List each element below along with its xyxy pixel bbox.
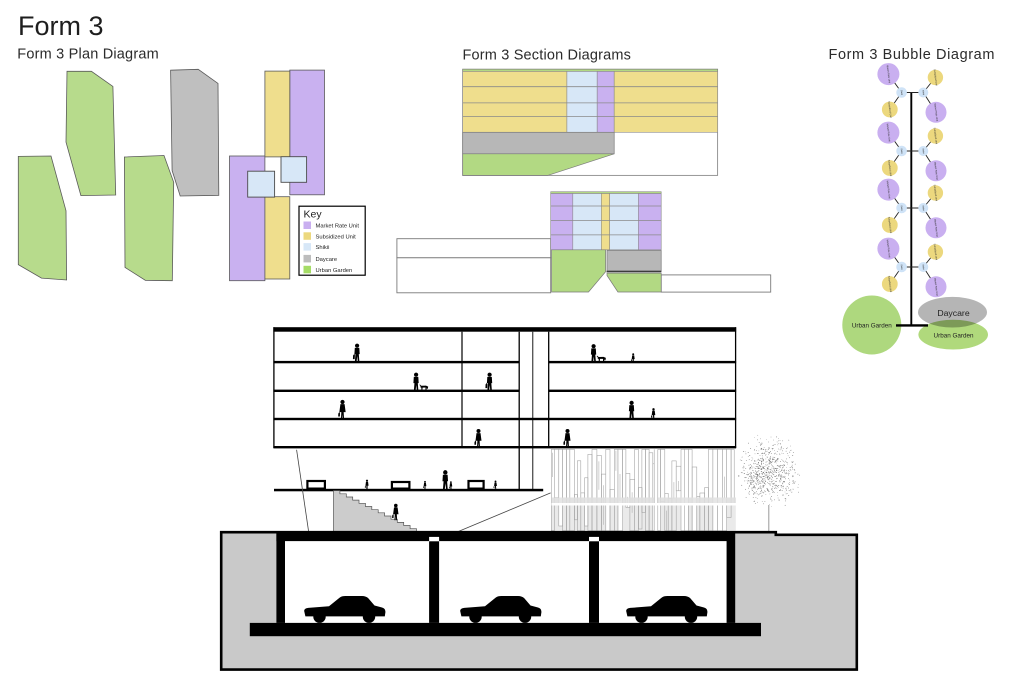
svg-text:Form 3 Section Diagrams: Form 3 Section Diagrams [463, 48, 632, 64]
svg-text:Key: Key [304, 209, 323, 221]
svg-text:Market Rate Unit: Market Rate Unit [316, 224, 360, 230]
svg-text:Urban Garden: Urban Garden [852, 322, 892, 329]
svg-text:Form 3 Plan Diagram: Form 3 Plan Diagram [17, 47, 159, 63]
svg-text:Form 3: Form 3 [18, 11, 104, 41]
svg-text:Daycare: Daycare [316, 257, 338, 263]
svg-text:Urban Garden: Urban Garden [316, 268, 353, 274]
svg-text:Urban Garden: Urban Garden [934, 333, 974, 340]
svg-text:Form 3 Bubble Diagram: Form 3 Bubble Diagram [829, 47, 996, 63]
svg-text:Subsidized Unit: Subsidized Unit [316, 234, 357, 240]
svg-text:Daycare: Daycare [937, 308, 970, 318]
svg-text:Shikii: Shikii [316, 245, 330, 251]
